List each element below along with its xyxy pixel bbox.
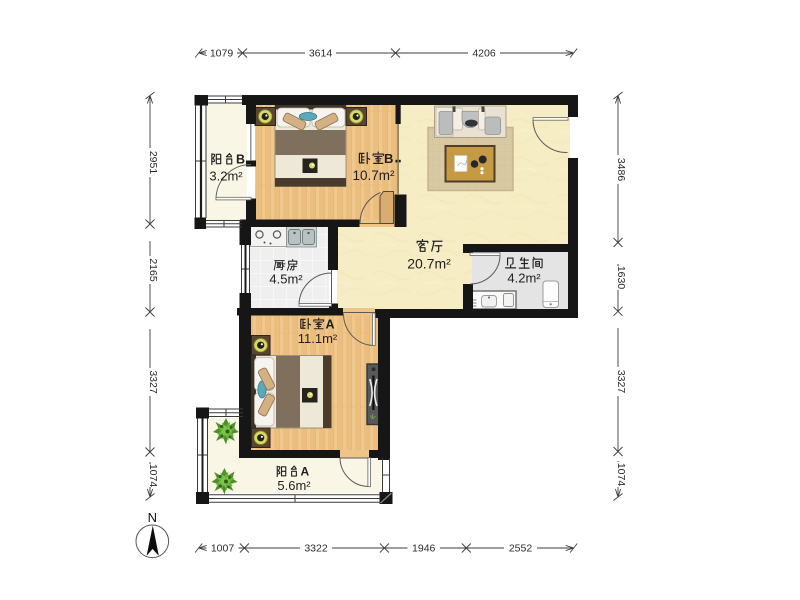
svg-text:A: A [301,465,310,479]
svg-text:1074: 1074 [147,464,159,488]
svg-text:3486: 3486 [615,158,627,182]
svg-text:1079: 1079 [210,48,234,60]
svg-text:1007: 1007 [211,543,235,555]
svg-text:1946: 1946 [412,543,436,555]
svg-text:4.2m²: 4.2m² [507,271,541,286]
svg-text:N: N [148,510,157,525]
svg-text:4206: 4206 [472,48,496,60]
svg-text:3614: 3614 [309,48,333,60]
svg-text:1074: 1074 [615,463,627,487]
svg-text:B: B [384,151,393,166]
svg-text:20.7m²: 20.7m² [407,256,451,272]
svg-text:4.5m²: 4.5m² [269,272,303,287]
svg-text:5.6m²: 5.6m² [277,478,311,493]
svg-text:2165: 2165 [147,258,159,282]
svg-text:A: A [326,318,335,332]
svg-text:10.7m²: 10.7m² [352,168,395,183]
svg-text:2951: 2951 [147,151,159,175]
svg-text:3327: 3327 [147,370,159,394]
svg-text:1630: 1630 [615,266,627,290]
svg-text:3.2m²: 3.2m² [209,169,243,184]
svg-text:B: B [236,153,245,167]
svg-text:11.1m²: 11.1m² [298,331,338,346]
svg-text:3322: 3322 [304,543,328,555]
svg-text:2552: 2552 [509,543,533,555]
svg-text:3327: 3327 [615,370,627,394]
